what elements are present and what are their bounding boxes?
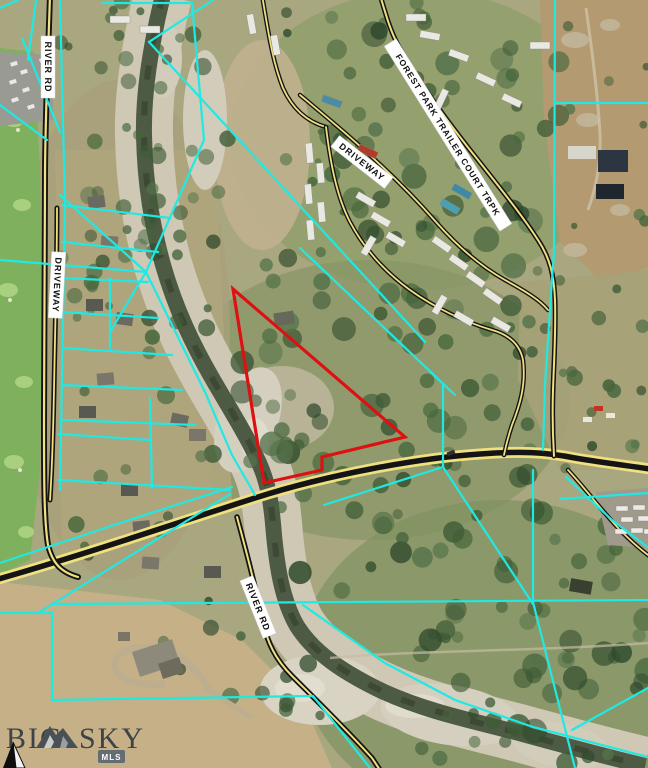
mls-badge: MLS <box>98 750 125 763</box>
mls-label: MLS <box>102 753 122 762</box>
map-image: RIVER RD DRIVEWAY DRIVEWAY FOREST PARK T… <box>0 0 648 768</box>
aerial-parcel-map[interactable]: RIVER RD DRIVEWAY DRIVEWAY FOREST PARK T… <box>0 0 648 768</box>
road-label-river-rd-top: RIVER RD <box>41 36 55 98</box>
svg-text:RIVER RD: RIVER RD <box>43 41 53 92</box>
